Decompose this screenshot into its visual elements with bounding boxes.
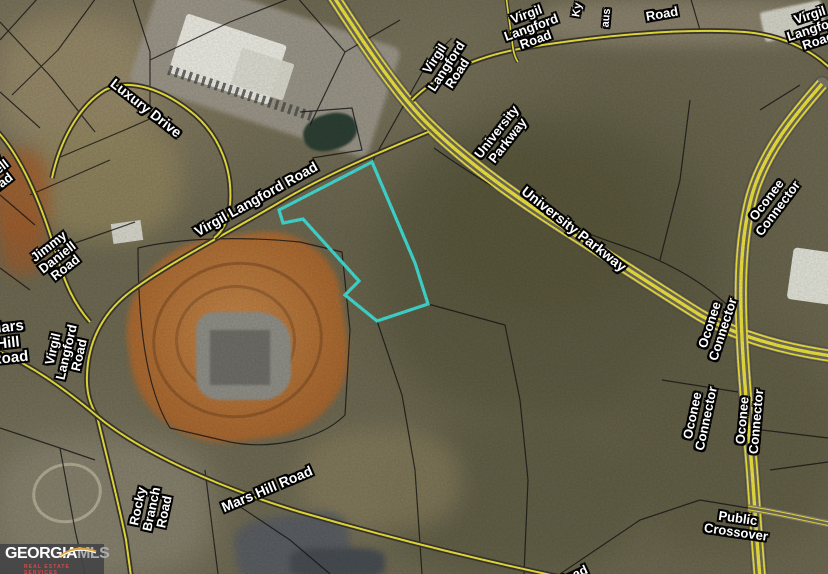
georgia-mls-logo: GEORGIAMLS REAL ESTATE SERVICES [0, 544, 104, 574]
road-jimmy-daniell [0, 130, 90, 322]
road-virgil-langford-east [412, 31, 828, 100]
map-canvas[interactable]: Luxury DriveVirgil Langford RoadVirgil L… [0, 0, 828, 574]
subject-parcel-outline [279, 162, 428, 321]
logo-swoosh-icon [58, 544, 98, 560]
map-vector-layer [0, 0, 828, 574]
road-oconee-connector [741, 84, 822, 574]
logo-tagline: REAL ESTATE SERVICES [24, 564, 104, 574]
road-luxury-drive [52, 85, 230, 238]
